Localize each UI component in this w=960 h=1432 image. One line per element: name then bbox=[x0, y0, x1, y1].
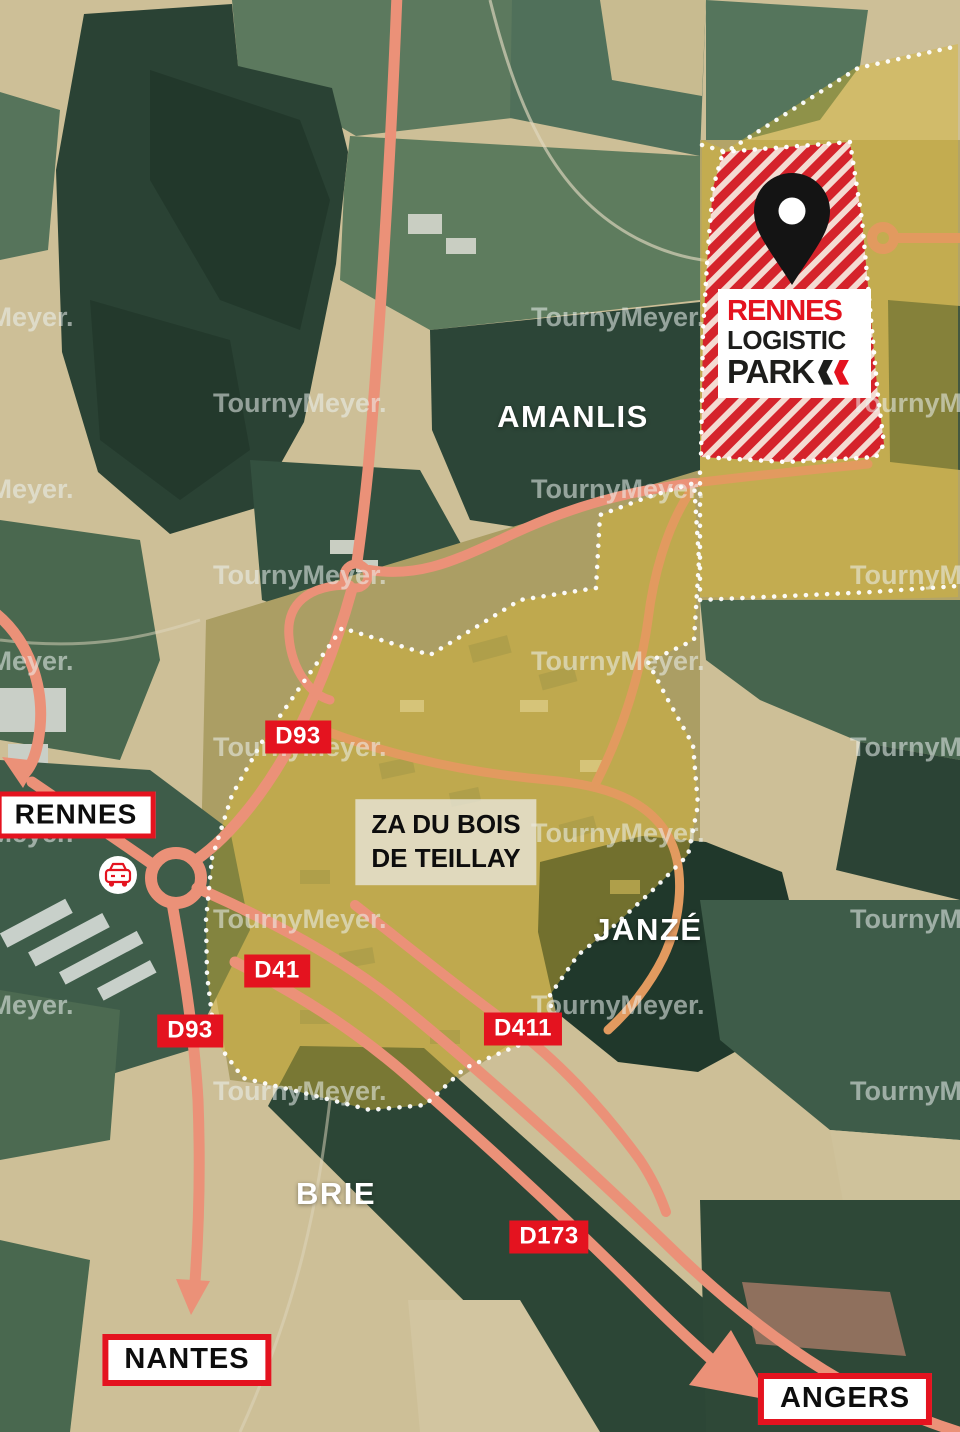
map-canvas: TournyMeyer. TournyMeyer. TournyMeyer. T… bbox=[0, 0, 960, 1432]
road-label-d93-north: D93 bbox=[265, 721, 331, 754]
place-label-amanlis: AMANLIS bbox=[497, 399, 649, 435]
road-label-d411: D411 bbox=[484, 1013, 562, 1046]
logo-line-park: PARK bbox=[727, 355, 862, 390]
logistic-park-logo: RENNES LOGISTIC PARK bbox=[718, 289, 871, 398]
chevron-left-icon bbox=[818, 360, 833, 385]
logo-park-text: PARK bbox=[727, 355, 814, 390]
destination-box-nantes: NANTES bbox=[102, 1334, 271, 1386]
logo-line-logistic: LOGISTIC bbox=[727, 326, 862, 355]
place-label-brie: BRIE bbox=[296, 1176, 376, 1212]
road-label-d93-south: D93 bbox=[157, 1015, 223, 1048]
destination-box-angers: ANGERS bbox=[758, 1373, 932, 1425]
zone-label-line1: ZA DU BOIS bbox=[371, 808, 520, 842]
destination-box-rennes: RENNES bbox=[0, 792, 155, 839]
logo-line-rennes: RENNES bbox=[727, 296, 862, 326]
chevron-left-icon bbox=[834, 360, 849, 385]
road-label-d41: D41 bbox=[244, 955, 310, 988]
place-label-janze: JANZÉ bbox=[593, 912, 702, 948]
zone-label-za-du-bois-de-teillay: ZA DU BOIS DE TEILLAY bbox=[355, 799, 536, 885]
satellite-map-graphic bbox=[0, 0, 960, 1432]
car-icon bbox=[99, 856, 137, 894]
zone-label-line2: DE TEILLAY bbox=[371, 842, 520, 876]
road-label-d173: D173 bbox=[509, 1221, 588, 1254]
